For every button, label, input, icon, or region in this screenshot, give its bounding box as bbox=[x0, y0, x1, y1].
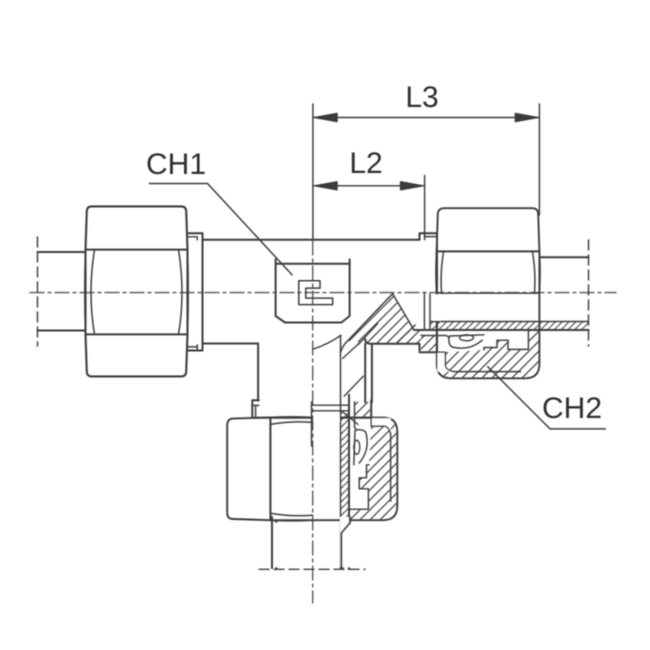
svg-text:CH2: CH2 bbox=[542, 392, 602, 425]
svg-text:CH1: CH1 bbox=[146, 148, 206, 181]
svg-text:L3: L3 bbox=[405, 81, 438, 114]
svg-text:L2: L2 bbox=[349, 147, 382, 180]
